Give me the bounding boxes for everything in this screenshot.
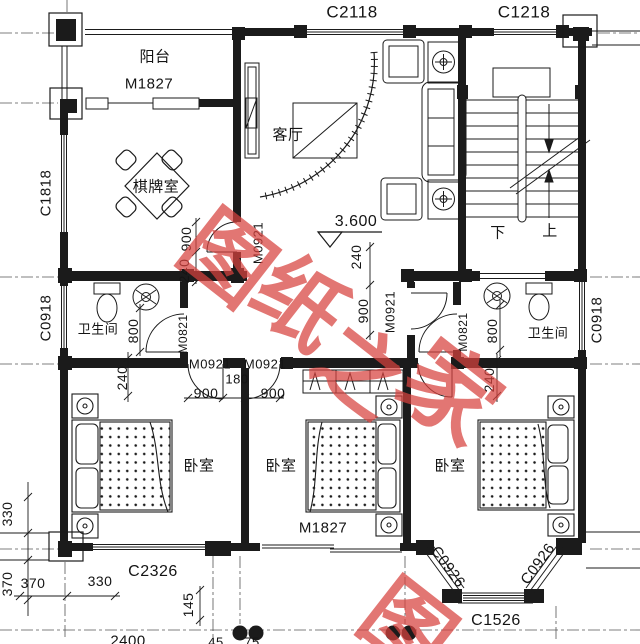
floor-plan: C2118C1218阳台M1827客厅C1818棋牌室3.600240M0921… xyxy=(0,0,640,644)
stairs xyxy=(466,68,590,222)
porch-columns xyxy=(233,626,417,641)
floor-plan-linework xyxy=(0,0,640,644)
chess-table xyxy=(114,148,189,219)
bed-left xyxy=(72,394,172,538)
bed-right xyxy=(478,396,574,536)
bathroom-left-fixtures xyxy=(94,283,159,322)
wardrobe xyxy=(303,370,403,393)
living-room-furniture xyxy=(245,40,466,220)
columns xyxy=(56,19,589,603)
bathroom-right-fixtures xyxy=(484,283,552,320)
bed-middle xyxy=(306,396,402,536)
grid-lines xyxy=(0,0,640,642)
